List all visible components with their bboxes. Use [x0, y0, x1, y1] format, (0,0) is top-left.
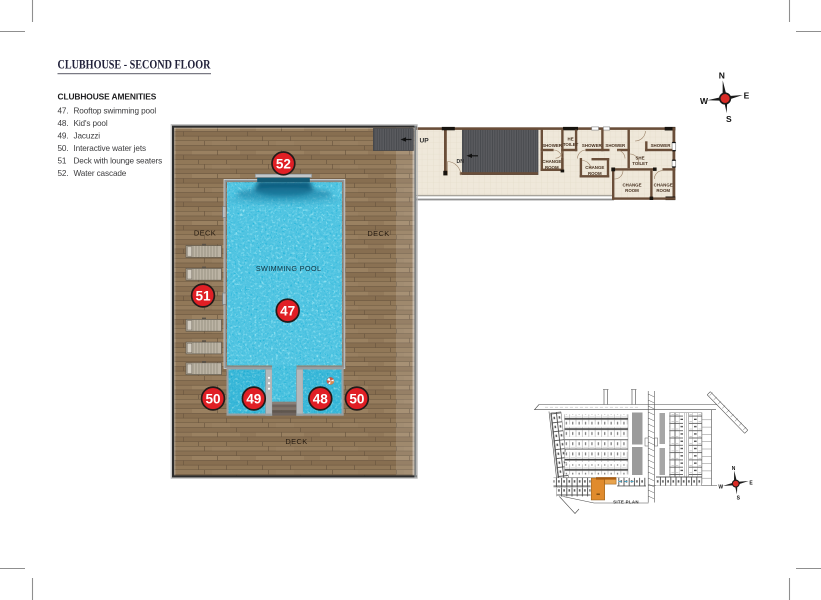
svg-text:52: 52: [276, 156, 292, 171]
svg-text:CHANGE: CHANGE: [622, 183, 641, 188]
svg-text:SHOWER: SHOWER: [542, 143, 563, 148]
svg-text:DECK: DECK: [367, 229, 389, 238]
svg-text:47.: 47.: [58, 107, 69, 116]
svg-text:ROOM: ROOM: [656, 188, 670, 193]
svg-text:CLUBHOUSE - SECOND FLOOR: CLUBHOUSE - SECOND FLOOR: [58, 58, 212, 72]
svg-text:51: 51: [58, 157, 67, 166]
svg-text:Water cascade: Water cascade: [74, 169, 127, 178]
svg-text:CHANGE: CHANGE: [542, 159, 561, 164]
svg-text:SHOWER: SHOWER: [605, 143, 626, 148]
svg-text:CLUBHOUSE AMENITIES: CLUBHOUSE AMENITIES: [58, 92, 157, 102]
svg-text:SHOWER: SHOWER: [582, 143, 603, 148]
svg-text:SHOWER: SHOWER: [651, 143, 672, 148]
svg-text:E: E: [744, 90, 750, 100]
svg-text:Interactive water jets: Interactive water jets: [74, 144, 146, 153]
svg-text:UP: UP: [420, 137, 430, 144]
svg-text:W: W: [718, 484, 723, 490]
svg-text:ROOM: ROOM: [625, 188, 639, 193]
svg-text:48.: 48.: [58, 119, 69, 128]
svg-text:W: W: [700, 96, 709, 106]
svg-text:Jacuzzi: Jacuzzi: [74, 132, 101, 141]
svg-text:50.: 50.: [58, 144, 69, 153]
svg-text:DECK: DECK: [285, 437, 307, 446]
svg-text:50: 50: [205, 391, 220, 406]
svg-text:47: 47: [280, 304, 295, 319]
svg-text:Kid's pool: Kid's pool: [74, 119, 108, 128]
svg-text:ROOM: ROOM: [588, 171, 602, 176]
svg-text:N: N: [732, 466, 736, 472]
svg-text:52.: 52.: [58, 169, 69, 178]
svg-text:ROOM: ROOM: [545, 165, 559, 170]
svg-text:48: 48: [313, 391, 329, 406]
svg-text:Rooftop swimming pool: Rooftop swimming pool: [74, 107, 157, 116]
svg-text:S: S: [726, 114, 732, 124]
svg-text:CHANGE: CHANGE: [585, 165, 604, 170]
svg-text:TOILET: TOILET: [632, 161, 648, 166]
svg-text:51: 51: [195, 288, 211, 303]
svg-text:DN: DN: [457, 159, 465, 165]
svg-text:49.: 49.: [58, 132, 69, 141]
svg-text:DECK: DECK: [194, 228, 216, 237]
svg-text:SITE PLAN: SITE PLAN: [613, 500, 639, 505]
svg-text:SHE: SHE: [635, 156, 644, 161]
svg-text:Deck with lounge seaters: Deck with lounge seaters: [74, 157, 163, 166]
svg-text:CHANGE: CHANGE: [654, 183, 673, 188]
svg-text:49: 49: [246, 391, 262, 406]
svg-text:TOILET: TOILET: [563, 142, 579, 147]
svg-text:N: N: [719, 71, 725, 81]
svg-text:50: 50: [349, 391, 364, 406]
svg-text:HE: HE: [568, 136, 574, 141]
svg-text:SWIMMING POOL: SWIMMING POOL: [256, 264, 322, 273]
